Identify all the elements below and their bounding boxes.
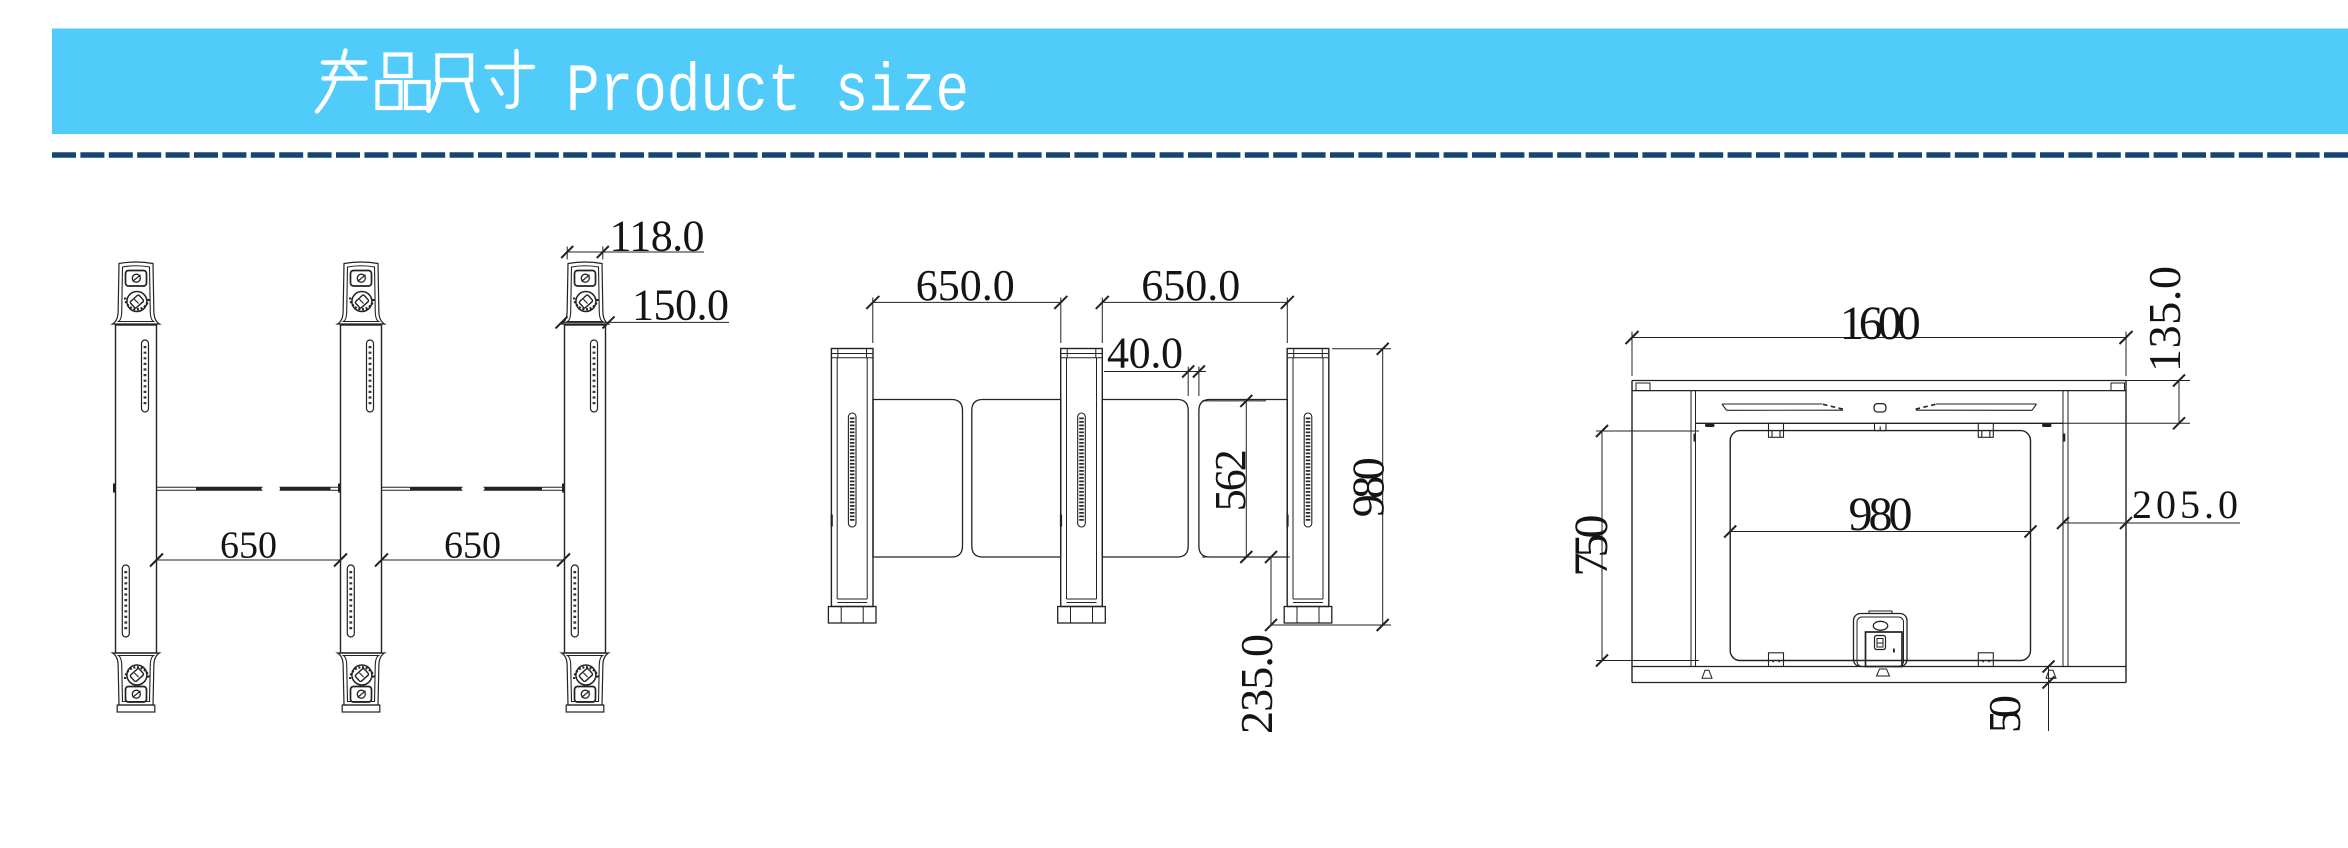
svg-text:980: 980 xyxy=(1849,488,1913,541)
svg-text:562: 562 xyxy=(1206,449,1255,511)
svg-text:205.0: 205.0 xyxy=(2132,482,2238,527)
svg-text:1600: 1600 xyxy=(1840,297,1921,350)
svg-text:650.0: 650.0 xyxy=(1141,261,1240,310)
svg-text:980: 980 xyxy=(1343,457,1394,517)
svg-text:40.0: 40.0 xyxy=(1107,329,1183,378)
svg-text:235.0: 235.0 xyxy=(1231,634,1282,734)
svg-text:650: 650 xyxy=(220,525,277,567)
svg-text:650.0: 650.0 xyxy=(916,261,1015,310)
svg-text:50: 50 xyxy=(1979,695,2030,733)
svg-text:135.0: 135.0 xyxy=(2139,266,2190,372)
svg-text:118.0: 118.0 xyxy=(610,212,705,261)
svg-text:750: 750 xyxy=(1565,515,1618,577)
svg-text:Product size: Product size xyxy=(566,53,969,130)
svg-text:650: 650 xyxy=(444,525,501,567)
svg-text:150.0: 150.0 xyxy=(632,281,729,330)
